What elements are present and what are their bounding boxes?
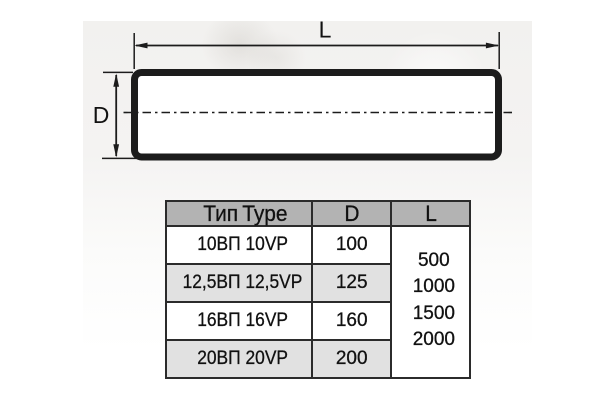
svg-text:D: D <box>93 102 110 128</box>
svg-text:L: L <box>319 17 332 43</box>
